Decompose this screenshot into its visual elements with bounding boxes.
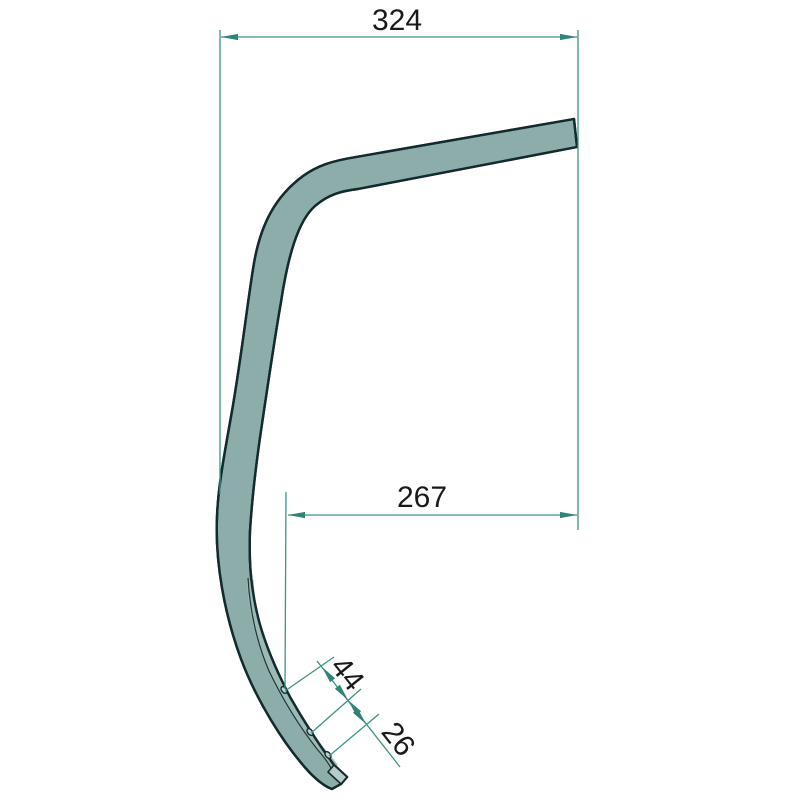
part-silhouette bbox=[217, 119, 577, 789]
dimension-label-267: 267 bbox=[397, 481, 447, 514]
dimension-267: 267 bbox=[285, 481, 577, 689]
drawing-page: 324 267 44 26 bbox=[0, 0, 800, 800]
arrow-267-left bbox=[288, 512, 305, 518]
extension-line-hole-3 bbox=[329, 714, 379, 756]
technical-drawing-canvas: 324 267 44 26 bbox=[0, 0, 800, 800]
arrow-324-left bbox=[221, 34, 238, 40]
extension-line-267-left bbox=[285, 492, 286, 689]
part-curved-tine bbox=[217, 119, 577, 789]
arrow-267-right bbox=[560, 512, 577, 518]
dimension-label-324: 324 bbox=[372, 4, 422, 37]
arrow-324-right bbox=[560, 34, 577, 40]
dimension-label-44: 44 bbox=[324, 651, 371, 698]
dimension-label-26: 26 bbox=[375, 716, 422, 763]
extension-line-hole-2 bbox=[311, 689, 361, 733]
